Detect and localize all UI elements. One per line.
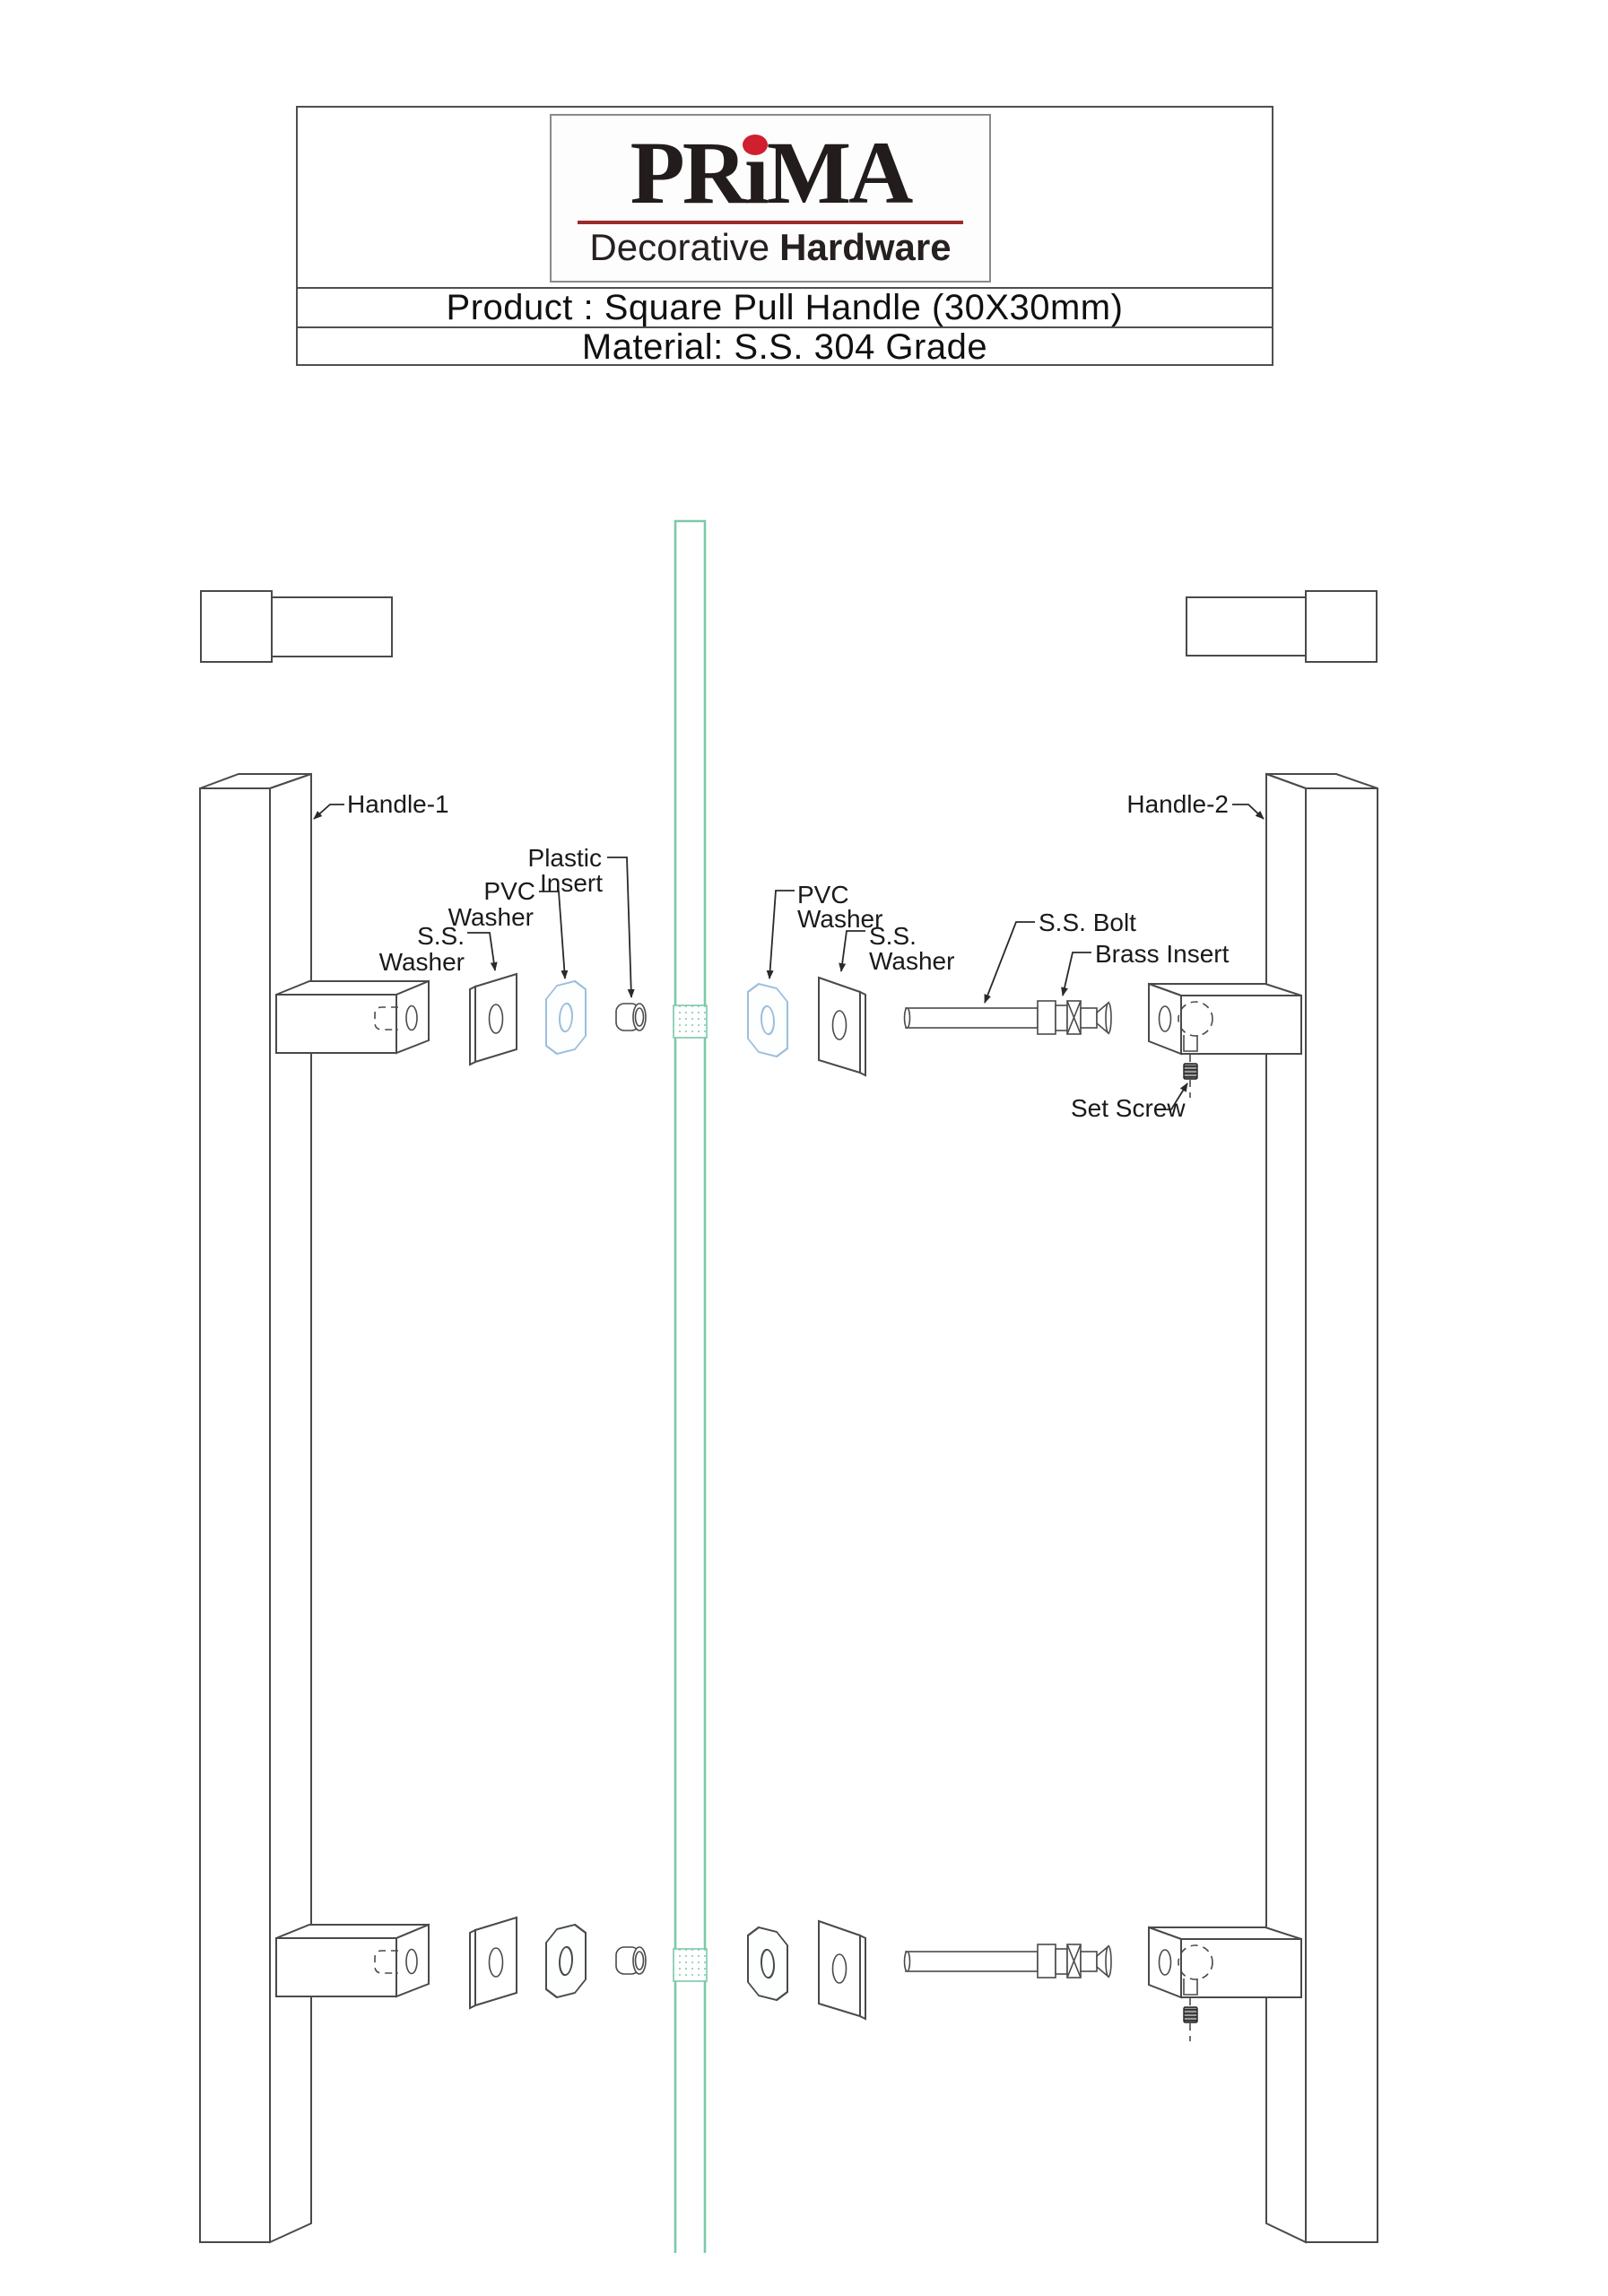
plan-view-left: [201, 591, 392, 662]
exploded-row-bottom: [276, 1918, 1301, 2041]
label-ss-bolt: S.S. Bolt: [1039, 909, 1136, 936]
drawing-sheet: PRiMA DecorativeHardware Product : Squar…: [0, 0, 1608, 2296]
label-ss-washer-right-1: S.S.: [869, 922, 917, 950]
label-ss-washer-right-2: Washer: [869, 947, 954, 975]
plan-view-right: [1186, 591, 1377, 662]
label-pvc-washer-left-2: Washer: [448, 903, 534, 931]
label-handle-1: Handle-1: [347, 790, 449, 818]
label-brass-insert: Brass Insert: [1095, 940, 1230, 968]
label-plastic-insert-1: Plastic: [528, 844, 602, 872]
glass-panel: [675, 521, 705, 2253]
assembly-drawing: Handle-1 Handle-2 S.S. Washer PVC Washer…: [0, 0, 1608, 2296]
label-plastic-insert-2: Insert: [540, 869, 603, 897]
exploded-row-top: [276, 974, 1301, 1098]
part-labels: Handle-1 Handle-2 S.S. Washer PVC Washer…: [347, 790, 1230, 1122]
label-set-screw: Set Screw: [1071, 1094, 1186, 1122]
label-ss-washer-left-2: Washer: [379, 948, 465, 976]
label-pvc-washer-left-1: PVC: [483, 877, 535, 905]
label-handle-2: Handle-2: [1126, 790, 1229, 818]
